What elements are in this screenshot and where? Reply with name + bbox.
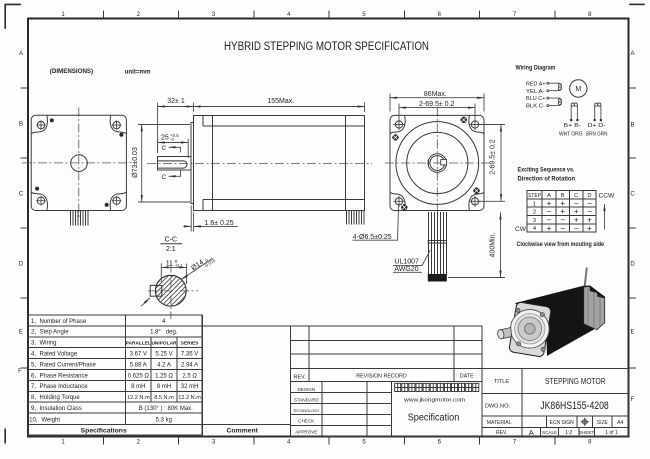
svg-text:Comment: Comment — [227, 427, 259, 434]
svg-text:CW: CW — [515, 226, 527, 233]
svg-text:TITLE: TITLE — [494, 379, 509, 385]
svg-text:YEL A-: YEL A- — [526, 89, 545, 95]
svg-text:3: 3 — [533, 218, 536, 224]
svg-text:BLU C+: BLU C+ — [526, 96, 546, 102]
svg-text:Phase Resistance: Phase Resistance — [40, 373, 89, 379]
svg-text:Wiring Diagram: Wiring Diagram — [516, 65, 556, 72]
svg-text:B (130° ) : 80K Max.: B (130° ) : 80K Max. — [139, 406, 193, 412]
svg-text:B+ B-: B+ B- — [564, 123, 582, 129]
svg-text:(DIMENSIONS): (DIMENSIONS) — [50, 68, 93, 75]
svg-text:Specifications: Specifications — [81, 427, 127, 434]
svg-text:Weight: Weight — [42, 417, 61, 423]
svg-text:3,: 3, — [31, 341, 36, 347]
svg-text:Number of Phase: Number of Phase — [40, 319, 87, 325]
svg-text:−: − — [560, 224, 565, 233]
svg-text:DESIGN: DESIGN — [297, 387, 315, 392]
svg-text:12.2 N.m: 12.2 N.m — [178, 395, 201, 401]
svg-text:unit=mm: unit=mm — [125, 69, 151, 76]
svg-text:9,: 9, — [31, 406, 36, 412]
svg-text:2-69.5± 0.2: 2-69.5± 0.2 — [490, 139, 497, 174]
svg-text:MATERIAL: MATERIAL — [487, 420, 512, 426]
svg-text:4-Ø6.5±0.25: 4-Ø6.5±0.25 — [353, 234, 392, 241]
svg-text:6,: 6, — [31, 373, 36, 379]
svg-text:32± 1: 32± 1 — [167, 98, 185, 105]
svg-text:8,: 8, — [31, 395, 36, 401]
svg-text:Wiring: Wiring — [40, 341, 57, 347]
svg-text:REVISION RECORD: REVISION RECORD — [356, 374, 407, 380]
svg-text:DATE: DATE — [460, 374, 474, 380]
svg-text:STEPPING MOTOR: STEPPING MOTOR — [545, 376, 606, 386]
svg-text:2:1: 2:1 — [166, 246, 176, 253]
svg-text:5.3 kg: 5.3 kg — [156, 417, 172, 423]
svg-text:REV.: REV. — [294, 375, 306, 381]
svg-text:C: C — [19, 192, 24, 198]
svg-text:A: A — [19, 51, 23, 57]
svg-text:400Min.: 400Min. — [490, 232, 497, 257]
svg-text:SERIES: SERIES — [181, 340, 199, 346]
svg-text:4,: 4, — [31, 352, 36, 358]
svg-text:RED A+: RED A+ — [526, 81, 546, 87]
svg-text:10,: 10, — [29, 417, 38, 423]
svg-text:1,: 1, — [31, 319, 36, 325]
svg-text:5,: 5, — [31, 362, 36, 368]
svg-text:A4: A4 — [617, 420, 623, 426]
svg-text:32 mH: 32 mH — [181, 384, 199, 390]
svg-text:11: 11 — [166, 260, 173, 267]
svg-text:155Max.: 155Max. — [267, 98, 294, 105]
svg-text:1.25 Ω: 1.25 Ω — [155, 373, 173, 379]
svg-text:12.2 N.m: 12.2 N.m — [127, 395, 150, 401]
svg-text:Ø73±0.03: Ø73±0.03 — [132, 147, 139, 178]
svg-text:D: D — [630, 262, 635, 268]
svg-text:2: 2 — [533, 210, 536, 216]
svg-text:Specification: Specification — [408, 413, 460, 424]
svg-text:7,: 7, — [31, 384, 36, 390]
svg-text:+: + — [547, 224, 552, 233]
svg-text:3.67 V: 3.67 V — [130, 352, 147, 358]
svg-text:C-C: C-C — [165, 237, 177, 244]
svg-text:2-69.5± 0.2: 2-69.5± 0.2 — [419, 101, 454, 108]
svg-text:−: − — [574, 224, 579, 233]
svg-text:CHECK: CHECK — [298, 419, 315, 424]
svg-text:5.25 V: 5.25 V — [155, 352, 172, 358]
svg-text:UL1007: UL1007 — [394, 258, 419, 265]
svg-text:UNIPOLAR: UNIPOLAR — [151, 340, 177, 346]
svg-text:Phase Inductance: Phase Inductance — [40, 384, 89, 390]
svg-text:1 of 1: 1 of 1 — [605, 430, 618, 436]
svg-text:SIZE: SIZE — [597, 420, 609, 426]
svg-text:C: C — [630, 192, 635, 198]
svg-text:ECN SIGN: ECN SIGN — [550, 420, 575, 426]
svg-text:www.jkongmotor.com: www.jkongmotor.com — [403, 398, 466, 404]
svg-text:Direction of Rotation: Direction of Rotation — [518, 175, 576, 182]
svg-text:2.5 Ω: 2.5 Ω — [182, 373, 197, 379]
svg-text:B: B — [630, 123, 634, 129]
svg-text:7.35 V: 7.35 V — [181, 352, 198, 358]
svg-text:2.94 A: 2.94 A — [181, 362, 198, 368]
svg-text:B: B — [19, 122, 23, 128]
svg-text:1.6± 0.25: 1.6± 0.25 — [205, 220, 234, 227]
svg-text:8 mH: 8 mH — [157, 384, 171, 390]
svg-text:1:2: 1:2 — [565, 430, 572, 436]
svg-text:86Max.: 86Max. — [424, 91, 447, 98]
svg-text:Rated Voltage: Rated Voltage — [40, 352, 78, 358]
svg-text:C: C — [162, 145, 167, 152]
svg-text:SHEET: SHEET — [579, 430, 595, 435]
svg-text:APPROVE: APPROVE — [295, 430, 317, 435]
svg-text:C: C — [162, 174, 167, 181]
svg-text:25: 25 — [161, 135, 169, 142]
svg-text:TECHNOLOGY: TECHNOLOGY — [293, 409, 320, 413]
svg-text:Step Angle: Step Angle — [40, 330, 70, 336]
svg-text:STEP: STEP — [528, 193, 542, 199]
svg-text:E: E — [19, 330, 23, 336]
svg-text:REV.: REV. — [496, 430, 507, 436]
svg-text:SCALE: SCALE — [542, 430, 557, 435]
svg-text:AWG20: AWG20 — [394, 266, 418, 273]
svg-text:Clockwise view from mouting si: Clockwise view from mouting side — [517, 241, 605, 248]
svg-text:1: 1 — [533, 201, 536, 207]
svg-text:+: + — [587, 224, 592, 233]
svg-text:Holding Torque: Holding Torque — [40, 395, 81, 401]
svg-text:M: M — [575, 86, 581, 93]
svg-text:DWG.NO.: DWG.NO. — [485, 403, 511, 409]
svg-text:WHT ORG: WHT ORG — [559, 132, 583, 138]
svg-text:JK86HS155-4208: JK86HS155-4208 — [540, 400, 609, 412]
svg-text:HYBRID STEPPING MOTOR SPECIFIC: HYBRID STEPPING MOTOR SPECIFICATION — [224, 41, 429, 53]
svg-text:4.2 A: 4.2 A — [157, 362, 171, 368]
svg-text:-0.1: -0.1 — [175, 263, 183, 268]
svg-text:BRN GRN: BRN GRN — [586, 132, 608, 138]
svg-text:-0: -0 — [170, 137, 174, 142]
svg-text:5.88 A: 5.88 A — [130, 362, 147, 368]
svg-text:1.8° deg.: 1.8° deg. — [150, 330, 178, 336]
svg-text:CCW: CCW — [599, 193, 616, 200]
svg-text:PARALLEL: PARALLEL — [126, 340, 151, 346]
svg-text:Rated Current/Phase: Rated Current/Phase — [40, 362, 97, 368]
svg-text:E: E — [630, 330, 634, 336]
svg-text:D: D — [19, 262, 24, 268]
svg-text:F: F — [631, 397, 635, 403]
svg-text:Insulation Class: Insulation Class — [40, 406, 82, 412]
svg-text:STANDARD: STANDARD — [294, 398, 320, 403]
svg-text:8 mH: 8 mH — [131, 384, 145, 390]
svg-text:F: F — [18, 369, 22, 375]
svg-text:0.625 Ω: 0.625 Ω — [128, 373, 150, 379]
svg-text:D+ D-: D+ D- — [588, 123, 606, 129]
svg-text:Exciting Sequence vs.: Exciting Sequence vs. — [518, 167, 575, 174]
svg-text:8.5 N.m: 8.5 N.m — [154, 395, 174, 401]
svg-text:BLK C-: BLK C- — [526, 104, 545, 110]
svg-text:A: A — [630, 51, 634, 57]
svg-text:2,: 2, — [31, 330, 36, 336]
svg-text:A: A — [529, 428, 534, 437]
